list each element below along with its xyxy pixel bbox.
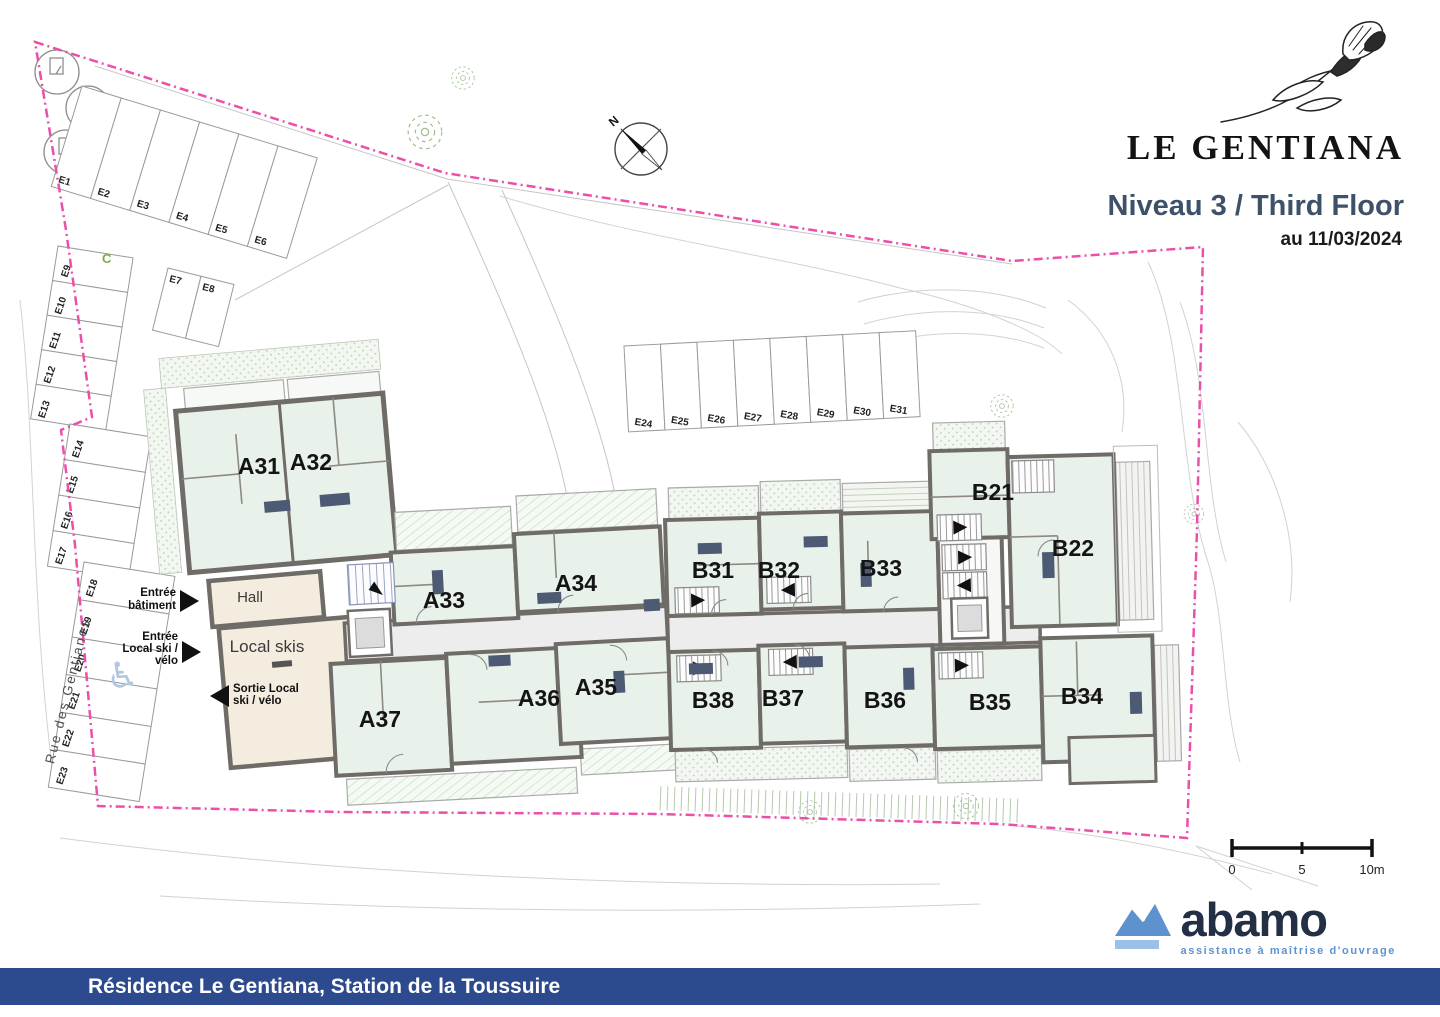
sortie-ski-line1: Sortie Local xyxy=(233,683,299,695)
hall-label: Hall xyxy=(237,589,263,606)
kitchen-fixture xyxy=(264,500,291,513)
unit-label-a31: A31 xyxy=(238,453,280,479)
parking-row-e1-e6: E1 E2 E3 E4 E5 E6 xyxy=(51,86,317,258)
balcony xyxy=(580,744,681,775)
compass-north-label: N xyxy=(606,113,622,129)
parking-pair-e7-e8: E7 E8 xyxy=(153,268,234,347)
balcony xyxy=(849,747,936,781)
balcony xyxy=(937,748,1042,783)
unit-label-b31: B31 xyxy=(692,557,734,583)
kitchen-fixture xyxy=(689,663,713,675)
entree-ski-line2: Local ski / xyxy=(122,643,178,655)
kitchen-fixture xyxy=(799,656,823,668)
parking-row-e24-e31: E24 E25 E26 E27 E28 E29 E30 E31 xyxy=(624,331,920,432)
unit-label-a32: A32 xyxy=(290,449,332,475)
unit-label-a35: A35 xyxy=(575,674,617,700)
compass-rose-north-icon: N xyxy=(606,113,667,175)
building-b-block xyxy=(663,417,1182,794)
unit-label-b35: B35 xyxy=(969,689,1011,715)
entree-ski-line3: vélo xyxy=(155,655,178,667)
balcony xyxy=(668,486,759,520)
scale-bar: 0 5 10m xyxy=(1228,839,1384,877)
accessible-parking-icon: ♿ xyxy=(105,655,139,698)
unit-label-a34: A34 xyxy=(555,570,597,596)
gentian-flower-sketch-icon xyxy=(1213,20,1388,130)
sortie-ski-line2: ski / vélo xyxy=(233,695,282,707)
unit-label-b38: B38 xyxy=(692,687,734,713)
unit-label-a33: A33 xyxy=(423,587,465,613)
balcony xyxy=(760,480,841,514)
floorplan-page: E1 E2 E3 E4 E5 E6 E7 E8 E9 E10 E11 E12 E… xyxy=(0,0,1440,1017)
zone-c-label: C xyxy=(102,251,112,266)
unit-b34-annex xyxy=(1069,735,1156,783)
scale-end-label: 10m xyxy=(1359,862,1384,877)
staircase xyxy=(347,563,395,605)
elevator-cab xyxy=(355,617,385,648)
abamo-mountain-mark-icon xyxy=(1113,894,1173,952)
scale-mid-label: 5 xyxy=(1298,862,1305,877)
project-title: LE GENTIANA xyxy=(1127,128,1404,168)
entree-batiment-line2: bâtiment xyxy=(128,600,176,612)
balcony xyxy=(1116,461,1154,620)
unit-label-b32: B32 xyxy=(758,557,800,583)
unit-label-b33: B33 xyxy=(860,555,902,581)
kitchen-fixture xyxy=(1130,692,1143,714)
scale-zero-label: 0 xyxy=(1228,862,1235,877)
balcony xyxy=(516,489,658,532)
local-skis-label: Local skis xyxy=(230,637,305,656)
abamo-logo: abamo assistance à maîtrise d'ouvrage xyxy=(1113,894,1396,957)
kitchen-fixture xyxy=(488,655,511,667)
footer-title-bar: Résidence Le Gentiana, Station de la Tou… xyxy=(0,968,1440,1005)
entree-batiment-line1: Entrée xyxy=(140,587,176,599)
logo-tagline: assistance à maîtrise d'ouvrage xyxy=(1181,946,1396,957)
entree-ski-line1: Entrée xyxy=(142,631,178,643)
balcony xyxy=(395,506,513,550)
unit-label-b22: B22 xyxy=(1052,535,1094,561)
unit-label-b37: B37 xyxy=(762,685,804,711)
unit-label-b21: B21 xyxy=(972,479,1014,505)
footer-text: Résidence Le Gentiana, Station de la Tou… xyxy=(88,975,560,998)
unit-label-b34: B34 xyxy=(1061,683,1103,709)
floor-level-title: Niveau 3 / Third Floor xyxy=(1108,190,1405,223)
plan-date: au 11/03/2024 xyxy=(1281,229,1403,251)
kitchen-fixture xyxy=(698,543,722,555)
kitchen-fixture xyxy=(644,599,661,612)
elevator-cab xyxy=(957,605,982,632)
staircase xyxy=(1012,460,1055,493)
logo-name: abamo xyxy=(1181,896,1396,943)
sortie-ski-arrow-icon xyxy=(210,685,229,707)
unit-label-b36: B36 xyxy=(864,687,906,713)
entree-ski-arrow-icon xyxy=(182,641,201,663)
unit-label-a37: A37 xyxy=(359,706,401,732)
grass-hatching xyxy=(654,784,1020,827)
entree-batiment-arrow-icon xyxy=(180,590,199,612)
balcony xyxy=(933,421,1006,451)
unit-label-a36: A36 xyxy=(518,685,560,711)
kitchen-fixture xyxy=(804,536,828,548)
